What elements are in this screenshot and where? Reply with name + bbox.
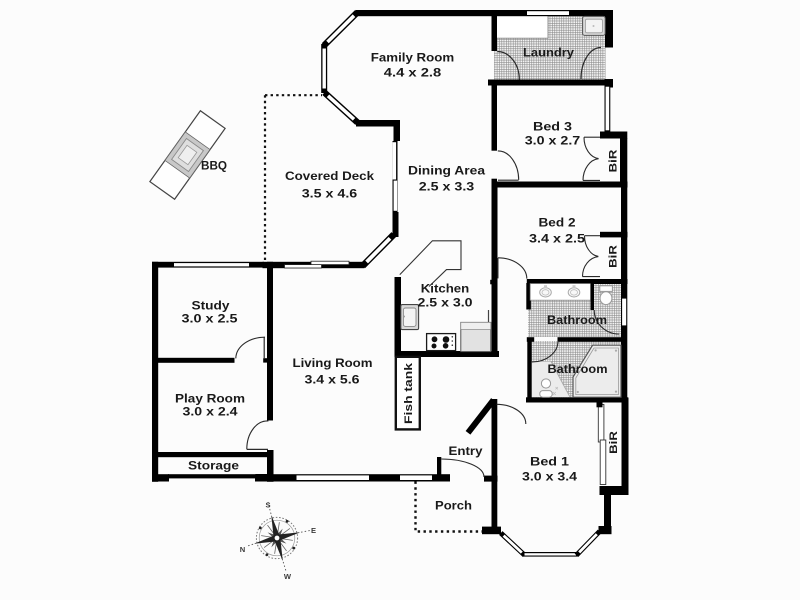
- svg-text:W: W: [284, 572, 292, 581]
- svg-text:Bathroom: Bathroom: [548, 362, 608, 376]
- svg-text:Bathroom: Bathroom: [547, 313, 607, 327]
- svg-text:Laundry: Laundry: [523, 45, 574, 59]
- svg-text:4.4 x 2.8: 4.4 x 2.8: [384, 65, 442, 79]
- svg-text:3.5 x 4.6: 3.5 x 4.6: [302, 186, 358, 200]
- svg-text:3.4 x 2.5: 3.4 x 2.5: [529, 231, 586, 245]
- svg-text:3.0 x 2.7: 3.0 x 2.7: [525, 134, 581, 148]
- svg-text:Living Room: Living Room: [293, 356, 373, 370]
- svg-text:3.4 x 5.6: 3.4 x 5.6: [305, 373, 361, 387]
- svg-text:N: N: [240, 545, 245, 554]
- svg-text:2.5 x 3.3: 2.5 x 3.3: [419, 179, 475, 193]
- svg-text:Family Room: Family Room: [371, 50, 454, 64]
- svg-text:Covered Deck: Covered Deck: [285, 169, 374, 183]
- svg-text:Storage: Storage: [188, 458, 240, 472]
- svg-text:Bed 2: Bed 2: [539, 215, 577, 229]
- svg-text:Entry: Entry: [449, 444, 483, 458]
- svg-text:Fish tank: Fish tank: [403, 362, 415, 424]
- svg-text:Bed 3: Bed 3: [533, 119, 573, 133]
- svg-text:BiR: BiR: [608, 245, 620, 268]
- svg-text:Study: Study: [192, 299, 230, 313]
- svg-text:Dining Area: Dining Area: [408, 164, 486, 178]
- svg-text:BiR: BiR: [608, 149, 620, 172]
- svg-text:S: S: [265, 501, 270, 510]
- svg-text:Kitchen: Kitchen: [421, 282, 470, 296]
- svg-text:2.5 x 3.0: 2.5 x 3.0: [418, 296, 474, 310]
- svg-text:E: E: [311, 526, 316, 535]
- svg-text:Play Room: Play Room: [175, 391, 245, 405]
- svg-text:BBQ: BBQ: [201, 158, 227, 172]
- svg-text:3.0 x 3.4: 3.0 x 3.4: [522, 469, 578, 483]
- svg-text:Bed 1: Bed 1: [530, 454, 570, 468]
- svg-text:3.0 x 2.4: 3.0 x 2.4: [183, 405, 239, 419]
- svg-text:Porch: Porch: [435, 498, 472, 512]
- svg-text:3.0 x 2.5: 3.0 x 2.5: [182, 312, 239, 326]
- svg-text:BiR: BiR: [608, 431, 620, 454]
